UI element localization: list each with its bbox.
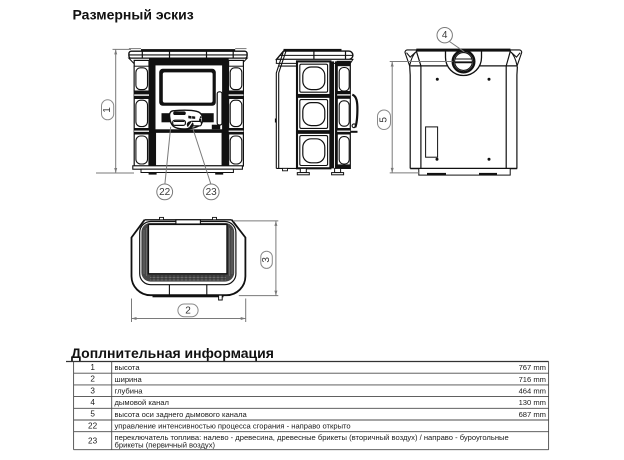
svg-text:1: 1 xyxy=(102,107,113,113)
svg-text:1: 1 xyxy=(90,363,95,372)
svg-text:4: 4 xyxy=(90,398,95,407)
svg-text:464 mm: 464 mm xyxy=(519,387,546,396)
svg-text:4: 4 xyxy=(442,30,448,41)
svg-text:767 mm: 767 mm xyxy=(519,363,546,372)
svg-text:2: 2 xyxy=(90,375,95,384)
svg-text:дымовой канал: дымовой канал xyxy=(115,398,169,407)
svg-text:130 mm: 130 mm xyxy=(519,398,546,407)
svg-text:ширина: ширина xyxy=(115,375,143,384)
svg-text:5: 5 xyxy=(379,117,390,123)
svg-text:2: 2 xyxy=(185,305,191,316)
svg-text:716 mm: 716 mm xyxy=(519,375,546,384)
svg-text:Доплнительная информация: Доплнительная информация xyxy=(71,345,274,361)
svg-text:Размерный эскиз: Размерный эскиз xyxy=(73,7,194,23)
svg-text:3: 3 xyxy=(90,386,95,395)
svg-text:22: 22 xyxy=(88,421,98,430)
svg-text:5: 5 xyxy=(90,410,95,419)
svg-text:брикеты (первичный воздух): брикеты (первичный воздух) xyxy=(115,441,216,450)
svg-text:высота оси заднего дымового ка: высота оси заднего дымового канала xyxy=(115,410,248,419)
svg-text:23: 23 xyxy=(88,436,98,445)
svg-text:687 mm: 687 mm xyxy=(519,410,546,419)
svg-text:высота: высота xyxy=(115,363,141,372)
svg-text:23: 23 xyxy=(206,187,218,198)
svg-text:глубина: глубина xyxy=(115,387,144,396)
svg-text:3: 3 xyxy=(261,257,272,263)
svg-text:22: 22 xyxy=(159,187,171,198)
svg-text:управление интенсивностью проц: управление интенсивностью процесса сгора… xyxy=(115,422,351,431)
